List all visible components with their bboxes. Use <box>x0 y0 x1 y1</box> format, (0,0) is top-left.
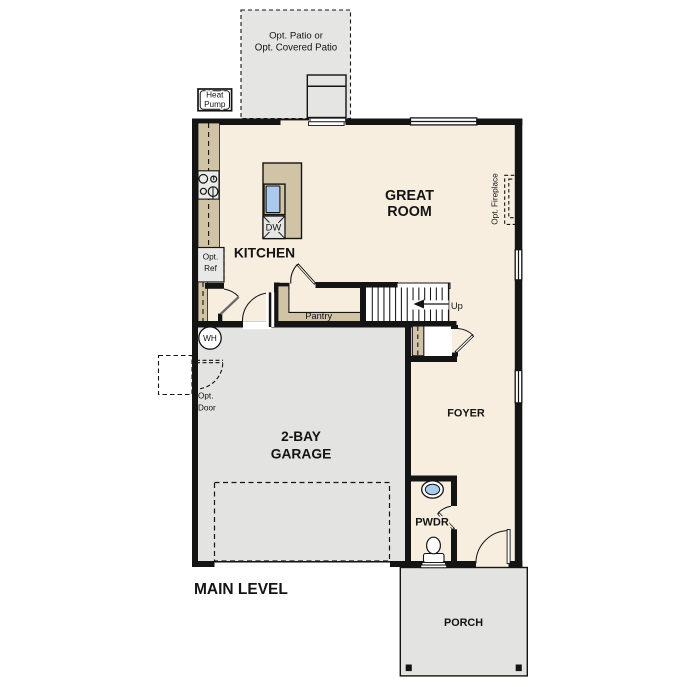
svg-text:ROOM: ROOM <box>387 204 431 220</box>
svg-text:MAIN LEVEL: MAIN LEVEL <box>194 581 288 598</box>
svg-text:Opt. Covered Patio: Opt. Covered Patio <box>255 42 337 53</box>
svg-text:Opt. Fireplace: Opt. Fireplace <box>490 173 499 225</box>
svg-text:Opt.: Opt. <box>198 392 213 401</box>
svg-text:GREAT: GREAT <box>385 188 434 204</box>
svg-text:DW: DW <box>266 222 282 233</box>
svg-text:Pantry: Pantry <box>305 311 332 321</box>
svg-text:Pump: Pump <box>204 100 226 109</box>
svg-text:FOYER: FOYER <box>447 408 485 420</box>
svg-text:PORCH: PORCH <box>444 617 483 629</box>
svg-text:Opt. Patio or: Opt. Patio or <box>269 31 324 42</box>
svg-text:WH: WH <box>203 334 217 343</box>
svg-text:Heat: Heat <box>206 91 224 100</box>
svg-text:Opt.: Opt. <box>203 253 218 262</box>
svg-text:GARAGE: GARAGE <box>271 447 332 462</box>
svg-text:Door: Door <box>198 404 216 413</box>
svg-text:2-BAY: 2-BAY <box>281 429 321 444</box>
svg-text:Up: Up <box>451 301 463 311</box>
svg-text:PWDR: PWDR <box>415 517 449 529</box>
svg-text:KITCHEN: KITCHEN <box>234 245 295 260</box>
svg-text:Ref: Ref <box>204 264 217 273</box>
